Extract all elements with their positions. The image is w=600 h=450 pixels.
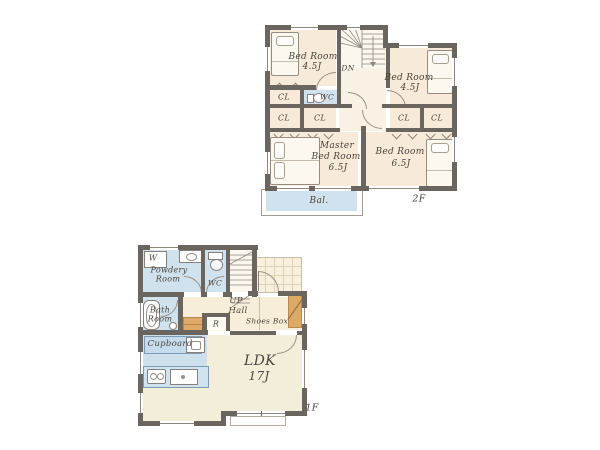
room-name: Powdery — [150, 266, 187, 275]
window — [291, 25, 318, 30]
window — [452, 58, 457, 86]
floor-label-2f: 2F — [412, 194, 425, 205]
room-size: 4.5J — [400, 83, 419, 93]
room-name: Master — [320, 141, 354, 151]
window — [150, 245, 178, 250]
wall — [252, 245, 257, 297]
wall — [201, 248, 205, 292]
window — [138, 352, 143, 374]
wc-label: WC — [208, 279, 222, 288]
room-name: Room — [148, 315, 172, 324]
wall — [278, 291, 307, 296]
room-name: Bed Room — [288, 52, 337, 62]
window — [237, 411, 261, 416]
stairs-label: DN — [341, 64, 354, 73]
wall — [300, 90, 304, 104]
wall — [361, 126, 366, 188]
floorplan-canvas: Bed Room 4.5J DN Bed Room 4.5J CL WC CL … — [0, 0, 600, 450]
bed-icon — [427, 50, 453, 94]
window — [138, 303, 143, 327]
wall — [300, 108, 304, 128]
wall — [337, 25, 341, 108]
floor-label-1f: 1F — [305, 403, 318, 414]
window — [369, 186, 419, 191]
washer-label: W — [149, 254, 158, 263]
wall — [248, 291, 258, 296]
cupboard-label: Cupboard — [148, 339, 193, 349]
balcony-door — [315, 186, 351, 191]
window — [265, 152, 270, 174]
window — [399, 43, 428, 48]
room-name: Bed Room — [375, 147, 424, 157]
wall — [201, 292, 207, 297]
refrigerator-label: R — [213, 320, 219, 329]
stove-icon — [170, 369, 198, 385]
wall — [420, 108, 424, 128]
shoes-box — [288, 294, 302, 328]
entrance-door-leaf — [258, 271, 259, 291]
shoes-box-label: Shoes Box — [246, 317, 288, 326]
closet-label: CL — [278, 114, 290, 123]
closet-label: CL — [278, 93, 290, 102]
wall — [265, 85, 316, 90]
wc-label: WC — [320, 93, 334, 102]
wall — [386, 128, 457, 132]
room-size: 17J — [249, 369, 270, 383]
window — [347, 25, 360, 30]
wall — [265, 104, 352, 108]
hall-label: Hall — [228, 306, 247, 316]
wall — [265, 128, 340, 132]
bed-icon — [426, 139, 453, 187]
window — [302, 350, 307, 388]
wall — [265, 25, 388, 30]
hall-label: UP — [229, 296, 242, 306]
wall — [297, 331, 307, 335]
stairs-1f-icon — [230, 250, 252, 292]
balcony-label: Bal. — [310, 196, 329, 206]
wall — [230, 331, 276, 335]
kitchen-sink-icon — [147, 369, 166, 384]
window — [138, 393, 143, 413]
wall — [226, 248, 230, 292]
window — [277, 186, 309, 191]
room-name: LDK — [244, 353, 276, 369]
wall — [138, 330, 208, 335]
closet-label: CL — [314, 114, 326, 123]
closet-label: CL — [431, 114, 443, 123]
room-size: 4.5J — [302, 62, 321, 72]
room-size: 6.5J — [391, 159, 410, 169]
closet-label: CL — [398, 114, 410, 123]
room-name: Bath — [150, 306, 170, 315]
vanity-sink-icon — [179, 250, 203, 263]
entry-terrace — [230, 416, 286, 426]
window — [265, 47, 270, 71]
window — [452, 137, 457, 162]
room-name: Bed Room — [311, 152, 360, 162]
room-name: Room — [156, 275, 180, 284]
window — [262, 411, 285, 416]
stairs-2f-icon — [340, 28, 385, 68]
toilet-icon — [210, 259, 223, 271]
room-name: Bed Room — [384, 73, 433, 83]
window — [160, 421, 194, 426]
room-size: 6.5J — [328, 163, 347, 173]
window — [302, 308, 307, 324]
